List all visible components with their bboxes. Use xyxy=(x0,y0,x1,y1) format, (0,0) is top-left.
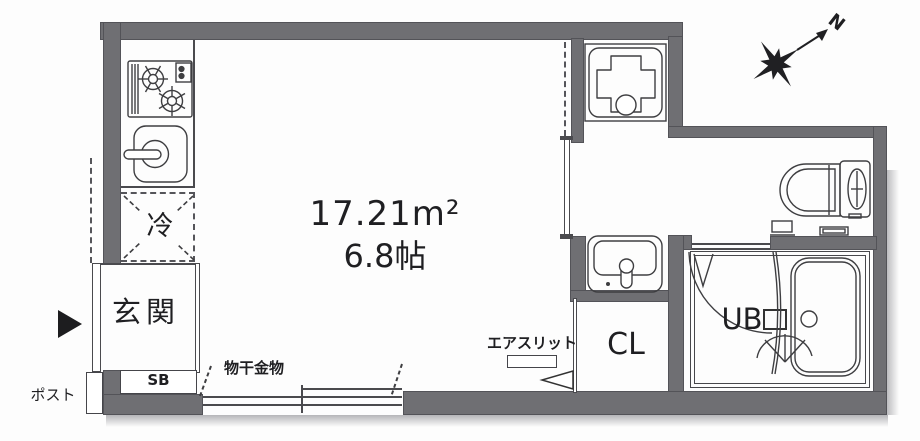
refrigerator-label: 冷 xyxy=(130,213,190,240)
air-slit-pointer xyxy=(542,371,573,389)
entrance-label: 玄関 xyxy=(96,298,196,327)
toilet-icon xyxy=(770,161,870,235)
gas-stove-icon xyxy=(128,61,192,120)
washbasin-icon xyxy=(588,236,662,292)
floor-plan: 17.21m² 6.8帖 玄関 冷 CL UB SB ポスト 物干金物 エアスリ… xyxy=(0,0,920,441)
shadow-right xyxy=(887,170,899,415)
post-label: ポスト xyxy=(22,388,84,403)
area-tatami-label: 6.8帖 xyxy=(300,240,470,272)
compass-rose-icon xyxy=(754,29,829,87)
area-sqm-label: 17.21m² xyxy=(300,197,470,231)
air-slit-label: エアスリット xyxy=(487,336,575,351)
bathtub-icon xyxy=(791,258,860,376)
shadow-bottom xyxy=(106,415,888,427)
unit-bath-label: UB xyxy=(714,305,770,334)
washing-machine-pan-icon xyxy=(585,44,666,121)
kitchen-sink-icon xyxy=(124,126,187,182)
closet-label: CL xyxy=(598,330,654,360)
entrance-arrow-icon xyxy=(58,310,82,338)
drying-hardware-label: 物干金物 xyxy=(212,361,296,376)
shoe-box-label: SB xyxy=(120,373,197,388)
